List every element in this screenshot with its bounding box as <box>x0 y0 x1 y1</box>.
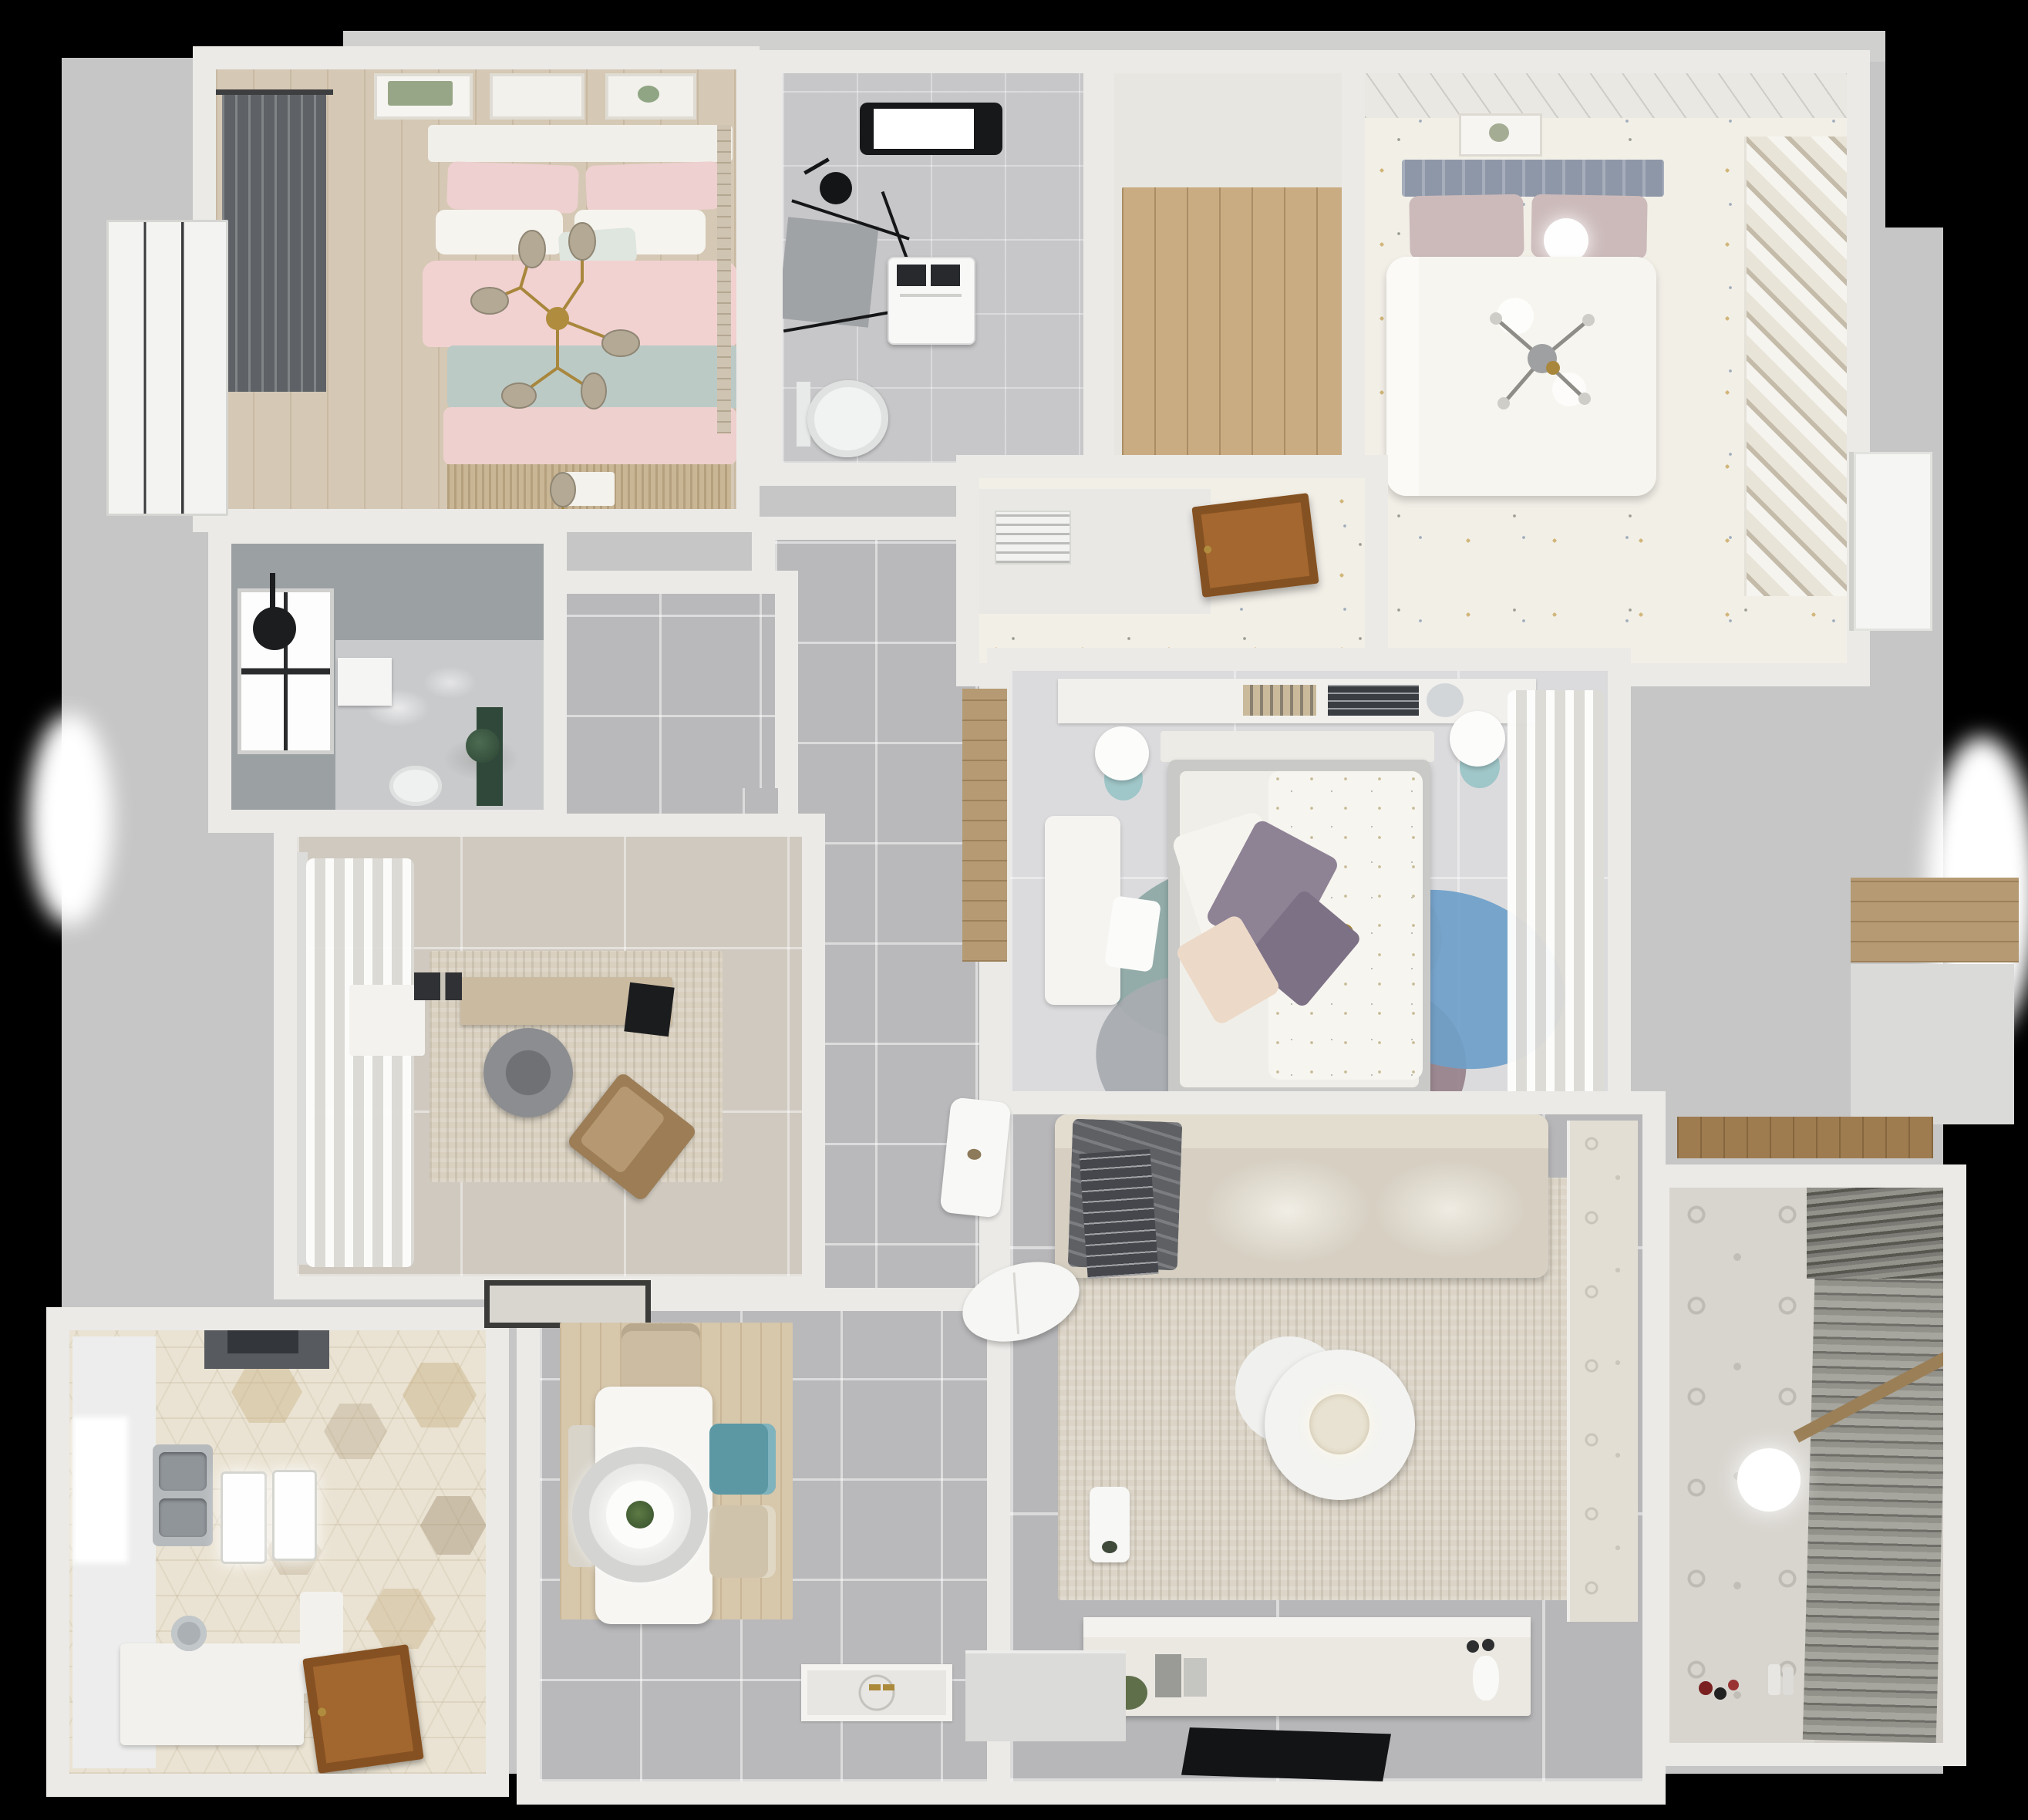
black-corner-tr <box>1885 0 2028 228</box>
bedroom-wood-niche <box>962 689 1007 962</box>
headboard <box>428 125 733 162</box>
stool-right <box>1446 711 1508 788</box>
dining-centerpiece-plant <box>626 1501 654 1528</box>
side-table-plant <box>1102 1541 1117 1553</box>
dining-chair-beige <box>709 1505 776 1578</box>
shower-head <box>253 607 296 650</box>
island-counter <box>120 1643 304 1745</box>
art-frame-1 <box>374 73 473 120</box>
art-frame-1-print <box>388 81 453 106</box>
right-wall-door <box>1849 452 1932 631</box>
accent-tile-strip <box>1567 1121 1638 1622</box>
mid-headboard <box>1161 731 1434 762</box>
kids-headboard <box>1402 160 1664 197</box>
stool-left-top <box>1095 726 1149 780</box>
master-window-leaf <box>106 220 228 516</box>
tv-console-top <box>1083 1617 1531 1637</box>
console-frame-2 <box>1184 1658 1207 1697</box>
hex-accent-1 <box>231 1361 302 1423</box>
right-niche-wood-shelf <box>1851 878 2019 962</box>
wall-cabinet <box>338 658 392 706</box>
washer-panel-1 <box>897 265 926 286</box>
room-kitchen <box>69 1330 486 1774</box>
blinds-top-block <box>1807 1188 1943 1279</box>
sofa-seat-glow-1 <box>1203 1157 1373 1265</box>
wardrobe-strip <box>717 125 731 433</box>
mid-curtains <box>1508 690 1604 1103</box>
window-dark <box>222 95 326 392</box>
pillow-pink-left <box>446 161 579 214</box>
dining-chair-top <box>622 1323 700 1393</box>
books-stack-1 <box>1243 685 1316 716</box>
toy-3 <box>1728 1680 1739 1690</box>
gold-chandelier <box>467 228 648 409</box>
console-vase <box>1473 1656 1499 1700</box>
entry-small-table <box>939 1097 1011 1218</box>
curtain-rod <box>216 89 333 95</box>
room-master-bedroom <box>216 69 736 509</box>
kids-art-frame <box>1459 113 1542 157</box>
door-handle-gold-1 <box>869 1684 881 1690</box>
stool-right-top <box>1450 711 1505 767</box>
sofa-blanket-striped <box>1079 1149 1158 1279</box>
right-niche-lower <box>1851 964 2014 1124</box>
floorplan-canvas: { "scene": { "title": "Top-down 3D rende… <box>0 0 2028 1820</box>
dining-chair-teal <box>709 1424 776 1495</box>
monitor <box>624 982 674 1037</box>
exterior-slab-top <box>343 31 1885 62</box>
kids-pillow-1 <box>1409 194 1524 260</box>
mid-desk-chair <box>1104 895 1161 972</box>
cross-chandelier <box>1473 289 1612 428</box>
washer-panel-2 <box>931 265 960 286</box>
kids-ceiling-strip <box>1365 73 1847 118</box>
room-kids-bedroom <box>1365 73 1847 663</box>
console-frame-1 <box>1155 1654 1181 1697</box>
sink-basin-2 <box>159 1498 207 1537</box>
door-handle-gold-2 <box>883 1684 894 1690</box>
books-stack-2 <box>1328 685 1419 716</box>
washing-machine <box>888 257 975 345</box>
coffee-table-inner <box>1309 1394 1369 1454</box>
sink-basin-1 <box>159 1452 207 1491</box>
toy-bottle-2 <box>1783 1667 1794 1695</box>
kids-art-print <box>1489 123 1509 142</box>
island-faucet <box>171 1616 207 1651</box>
toy-1 <box>1699 1681 1713 1695</box>
study-curtains <box>306 858 414 1267</box>
room-hallway-upper <box>559 594 775 817</box>
double-sink <box>153 1444 213 1546</box>
pendant-light-1 <box>221 1471 267 1564</box>
balcony-top-wood-shelf <box>1677 1117 1933 1158</box>
pouf-seam <box>1013 1272 1020 1334</box>
hex-accent-3 <box>403 1363 477 1427</box>
room-entry-closet <box>1114 73 1353 463</box>
door-handle <box>317 1707 326 1717</box>
entry-door-sill <box>965 1650 1126 1741</box>
sofa-seat-glow-2 <box>1373 1159 1527 1259</box>
room-ensuite-bathroom <box>231 544 544 810</box>
side-table-white <box>1090 1487 1130 1562</box>
light-bloom-left <box>28 713 113 925</box>
toilet <box>389 766 442 806</box>
room-hallway-corridor <box>775 540 979 1346</box>
hex-accent-4 <box>420 1496 486 1555</box>
kitchen-window-glow <box>72 1417 128 1563</box>
washer-line <box>900 294 962 297</box>
coffee-table <box>1265 1350 1415 1500</box>
room-balcony <box>1669 1188 1943 1743</box>
blanket-pink-low <box>443 407 736 465</box>
hex-accent-6 <box>366 1589 436 1649</box>
mid-desk <box>1045 816 1120 1005</box>
shower-tile-pan <box>783 217 879 328</box>
stool-left <box>1093 726 1150 800</box>
duvet-fold <box>1386 257 1419 496</box>
plant <box>466 729 500 763</box>
skylight-glass <box>874 109 974 149</box>
console-bottle-2 <box>1482 1639 1494 1651</box>
dining-pendant-outer <box>572 1447 708 1582</box>
room-main-bathroom <box>783 73 1083 463</box>
toy-bottle-1 <box>1768 1664 1780 1695</box>
closet-wood-floor <box>1122 187 1347 457</box>
toy-2 <box>1714 1687 1726 1700</box>
room-kids-bedroom-entry <box>979 478 1365 663</box>
art-frame-2 <box>490 73 584 120</box>
kids-room-door <box>1191 493 1319 598</box>
ac-vent-grille <box>995 511 1071 565</box>
room-middle-bedroom <box>1010 671 1608 1103</box>
room-study <box>297 837 802 1276</box>
study-door-mat <box>484 1280 651 1328</box>
gold-chandelier-small <box>497 482 628 509</box>
ball-pendant-light <box>1737 1448 1801 1512</box>
hex-accent-2 <box>324 1404 387 1459</box>
hallway-connector <box>743 788 778 821</box>
toilet-2 <box>803 375 894 463</box>
console-bottle-1 <box>1467 1640 1479 1653</box>
kids-door-handle <box>1204 545 1212 554</box>
skylight <box>860 103 1002 155</box>
range-hood-vent <box>227 1330 298 1353</box>
slatted-wardrobe <box>1744 136 1847 596</box>
shower-arm-2 <box>803 157 830 174</box>
small-table-item <box>967 1148 982 1161</box>
pendant-light-2 <box>272 1470 317 1561</box>
desk-chair <box>483 1028 573 1117</box>
art-frame-3 <box>605 73 696 120</box>
shower-head-2 <box>820 172 852 204</box>
entry-mat <box>801 1664 952 1721</box>
tv-panel <box>1181 1727 1391 1781</box>
art-frame-3-print <box>638 86 659 103</box>
desk-books <box>414 972 462 1000</box>
kitchen-wood-door <box>302 1644 424 1774</box>
pillow-pink-right <box>585 161 722 214</box>
